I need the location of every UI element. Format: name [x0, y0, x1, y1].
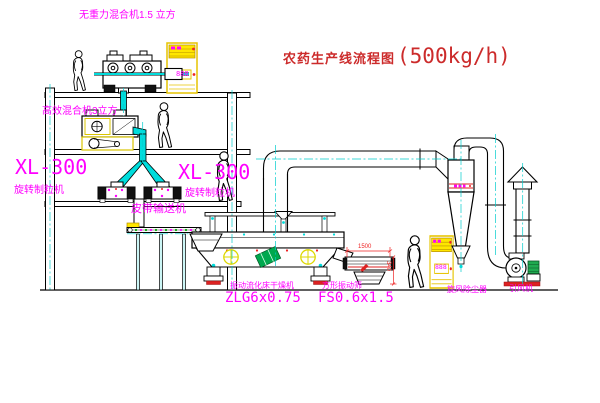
high-efficiency-mixer-label: 高效混合机3立方 [42, 107, 118, 118]
vibration-motor-symbol [224, 250, 238, 264]
screen-length-dimension: 1500 [358, 244, 371, 250]
belt-conveyor-label: 皮带输送机 [131, 204, 186, 216]
floor-slab-2 [45, 150, 250, 155]
worker-figure [158, 103, 172, 148]
screen-model-label: FS0.6x1.5 [318, 291, 394, 306]
worker-figure [73, 51, 85, 91]
conveyor-support-column [137, 234, 140, 290]
belt-drive-guard [82, 137, 133, 150]
cabinet-display-top: 888 [176, 71, 189, 78]
fluid-bed-dryer-drawing [192, 212, 353, 285]
granulator-left-drawing [98, 182, 135, 203]
worker-figure [408, 236, 424, 288]
fan-motor [528, 261, 539, 274]
title-text: 农药生产线流程图 [283, 48, 395, 67]
gravity-free-mixer-label: 无重力混合机1.5 立方 [79, 11, 176, 22]
process-flow-diagram: 农药生产线流程图 (500kg/h) 无重力混合机1.5 立方 高效混合机3立方… [0, 0, 600, 403]
conveyor-support-column [160, 234, 163, 290]
control-cabinet-ground [430, 236, 453, 288]
screen-height-dimension: 340 [385, 261, 391, 271]
granulator-name-right-label: 旋转制粒机 [185, 189, 235, 200]
floor-slab-top [45, 93, 250, 98]
conveyor-support-column [183, 234, 186, 290]
fan-label: 引风机 [509, 285, 533, 293]
diagram-title: 农药生产线流程图 (500kg/h) [283, 44, 511, 68]
belt-conveyor-drawing [127, 223, 201, 234]
cabinet-display-ground: 888 [435, 264, 447, 271]
granulator-name-left-label: 旋转制粒机 [14, 186, 64, 197]
granulator-right-drawing [144, 182, 181, 203]
granulator-model-right-label: XL-300 [178, 162, 250, 183]
exhaust-duct [264, 149, 449, 233]
cyclone-label: 旋风除尘器 [447, 286, 487, 294]
granulator-model-left-label: XL-300 [15, 157, 87, 178]
vibration-motor-symbol [301, 250, 315, 264]
title-capacity: (500kg/h) [397, 44, 511, 68]
induced-fan-drawing [504, 253, 540, 286]
dryer-model-label: ZLG6x0.75 [225, 291, 301, 306]
